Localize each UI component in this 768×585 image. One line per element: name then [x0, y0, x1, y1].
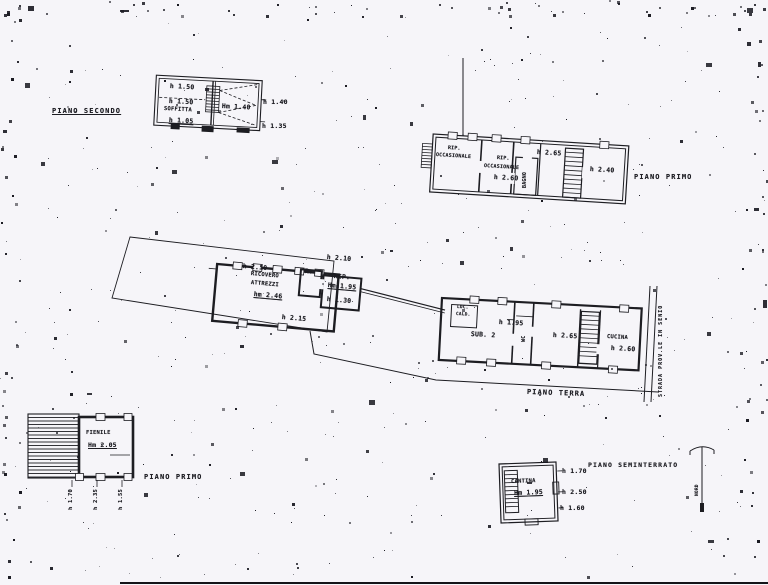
- room-label-rip1: RIP.: [448, 146, 461, 152]
- dim-label: Hm 2.05: [88, 442, 117, 449]
- dim-label: h 2.60: [611, 345, 636, 353]
- dim-label: h 1.35: [262, 123, 287, 130]
- dim-label: h 1.05: [169, 117, 194, 125]
- dim-label: h 2.15: [281, 314, 306, 323]
- plan-title-fienile: PIANO PRIMO: [144, 474, 202, 481]
- primo-stair: [563, 148, 584, 198]
- room-label-fienile: FIENILE: [86, 431, 111, 437]
- plan-title-seminterrato: PIANO SEMINTERRATO: [588, 462, 678, 469]
- floorplan-linework: [0, 0, 768, 585]
- room-label-rip2: RIP.: [497, 156, 510, 162]
- dim-label: h 1.60: [560, 505, 585, 512]
- fienile-hatched-area: [28, 414, 79, 478]
- dim-label: h 1.95: [499, 319, 524, 327]
- dim-label: h 2.40: [590, 166, 615, 174]
- north-label: NORD: [696, 484, 701, 496]
- dim-label: h 2.35: [94, 489, 100, 510]
- dim-label: h 1.50: [169, 98, 194, 106]
- room-label-r: R.: [304, 268, 313, 275]
- room-label-rip: RIP.: [333, 273, 350, 281]
- plan-fienile-walls: [28, 414, 133, 488]
- dim-label: h 1.70: [69, 489, 75, 510]
- north-arrow: [690, 447, 714, 512]
- terra-road: [644, 286, 657, 402]
- scanned-floorplan-page: h 1.50 h 1.50 SOFFITTA h 1.05 Hm 1.40 h …: [0, 0, 768, 585]
- terra-stair: [579, 311, 600, 364]
- room-label-wc: WC: [522, 336, 527, 342]
- dim-label: Hm 1.40: [222, 103, 251, 111]
- room-label-loc-cald: CALD.: [456, 313, 471, 318]
- scan-edge-bar: [120, 582, 768, 584]
- dim-label: h 2.65: [537, 149, 562, 157]
- dim-label: h 1.30: [326, 296, 351, 305]
- dim-label: h 1.55: [119, 489, 125, 510]
- dim-label: h 1.70: [562, 468, 587, 475]
- room-label-bagno: BAGNO: [523, 172, 528, 188]
- plan-title-primo: PIANO PRIMO: [634, 174, 692, 181]
- dim-label: h 2.65: [553, 332, 578, 340]
- plan-title-secondo: PIANO SECONDO: [52, 108, 121, 115]
- road-label: STRADA PROV.LE IN SENIO: [659, 305, 664, 397]
- dim-label: h 2.10: [326, 254, 351, 263]
- dim-label: h 2.10: [242, 263, 267, 272]
- dim-label: h 1.50: [170, 83, 195, 91]
- room-label-cucina: CUCINA: [607, 335, 628, 342]
- dim-label: Hm 1.95: [514, 489, 543, 497]
- dim-label: h 2.60: [494, 174, 519, 182]
- room-label-sub2: SUB. 2: [471, 331, 496, 339]
- dim-label: h 2.50: [562, 489, 587, 496]
